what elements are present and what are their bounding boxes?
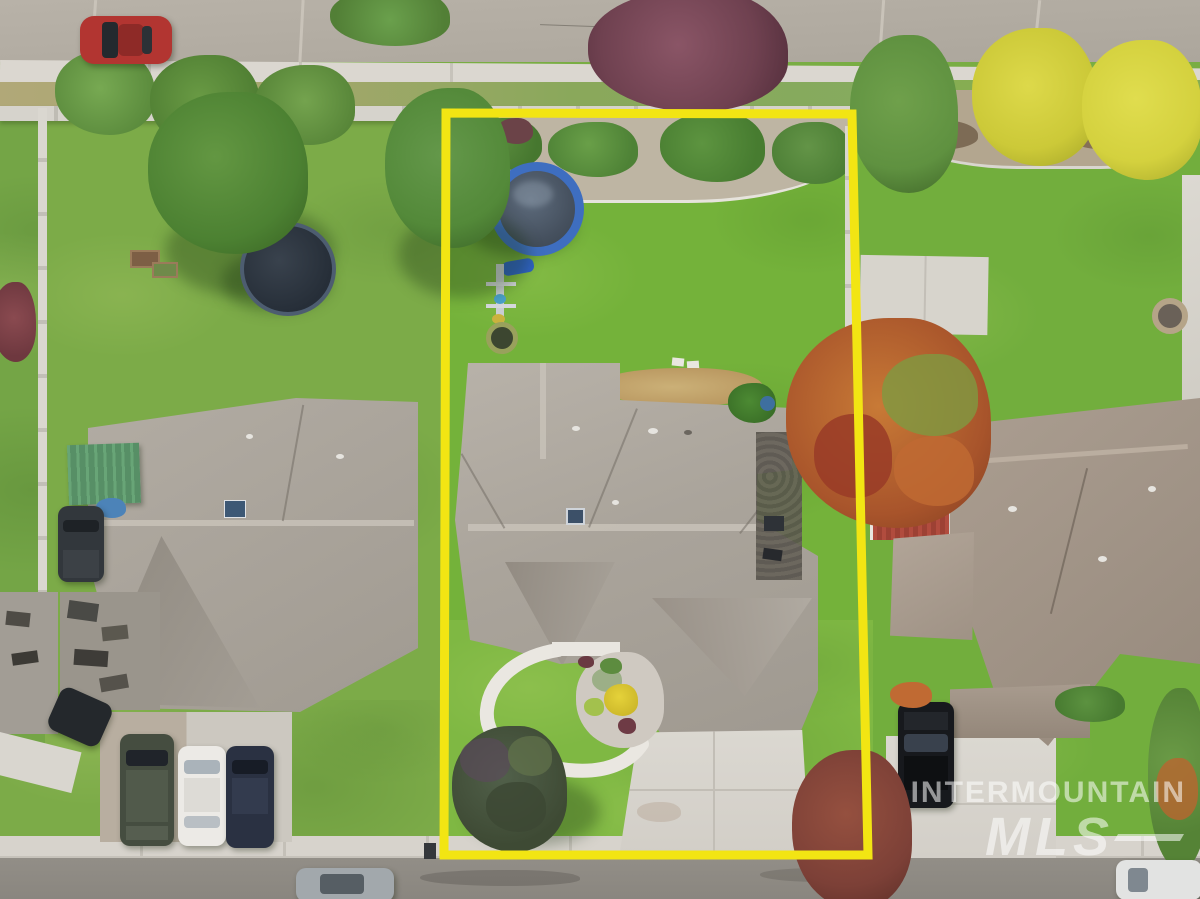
aerial-photo: INTERMOUNTAIN MLS <box>0 0 1200 899</box>
watermark-line1: INTERMOUNTAIN <box>772 778 1192 808</box>
mls-watermark: INTERMOUNTAIN MLS <box>772 778 1192 864</box>
watermark-underline <box>1114 834 1184 841</box>
property-boundary <box>0 0 1200 899</box>
